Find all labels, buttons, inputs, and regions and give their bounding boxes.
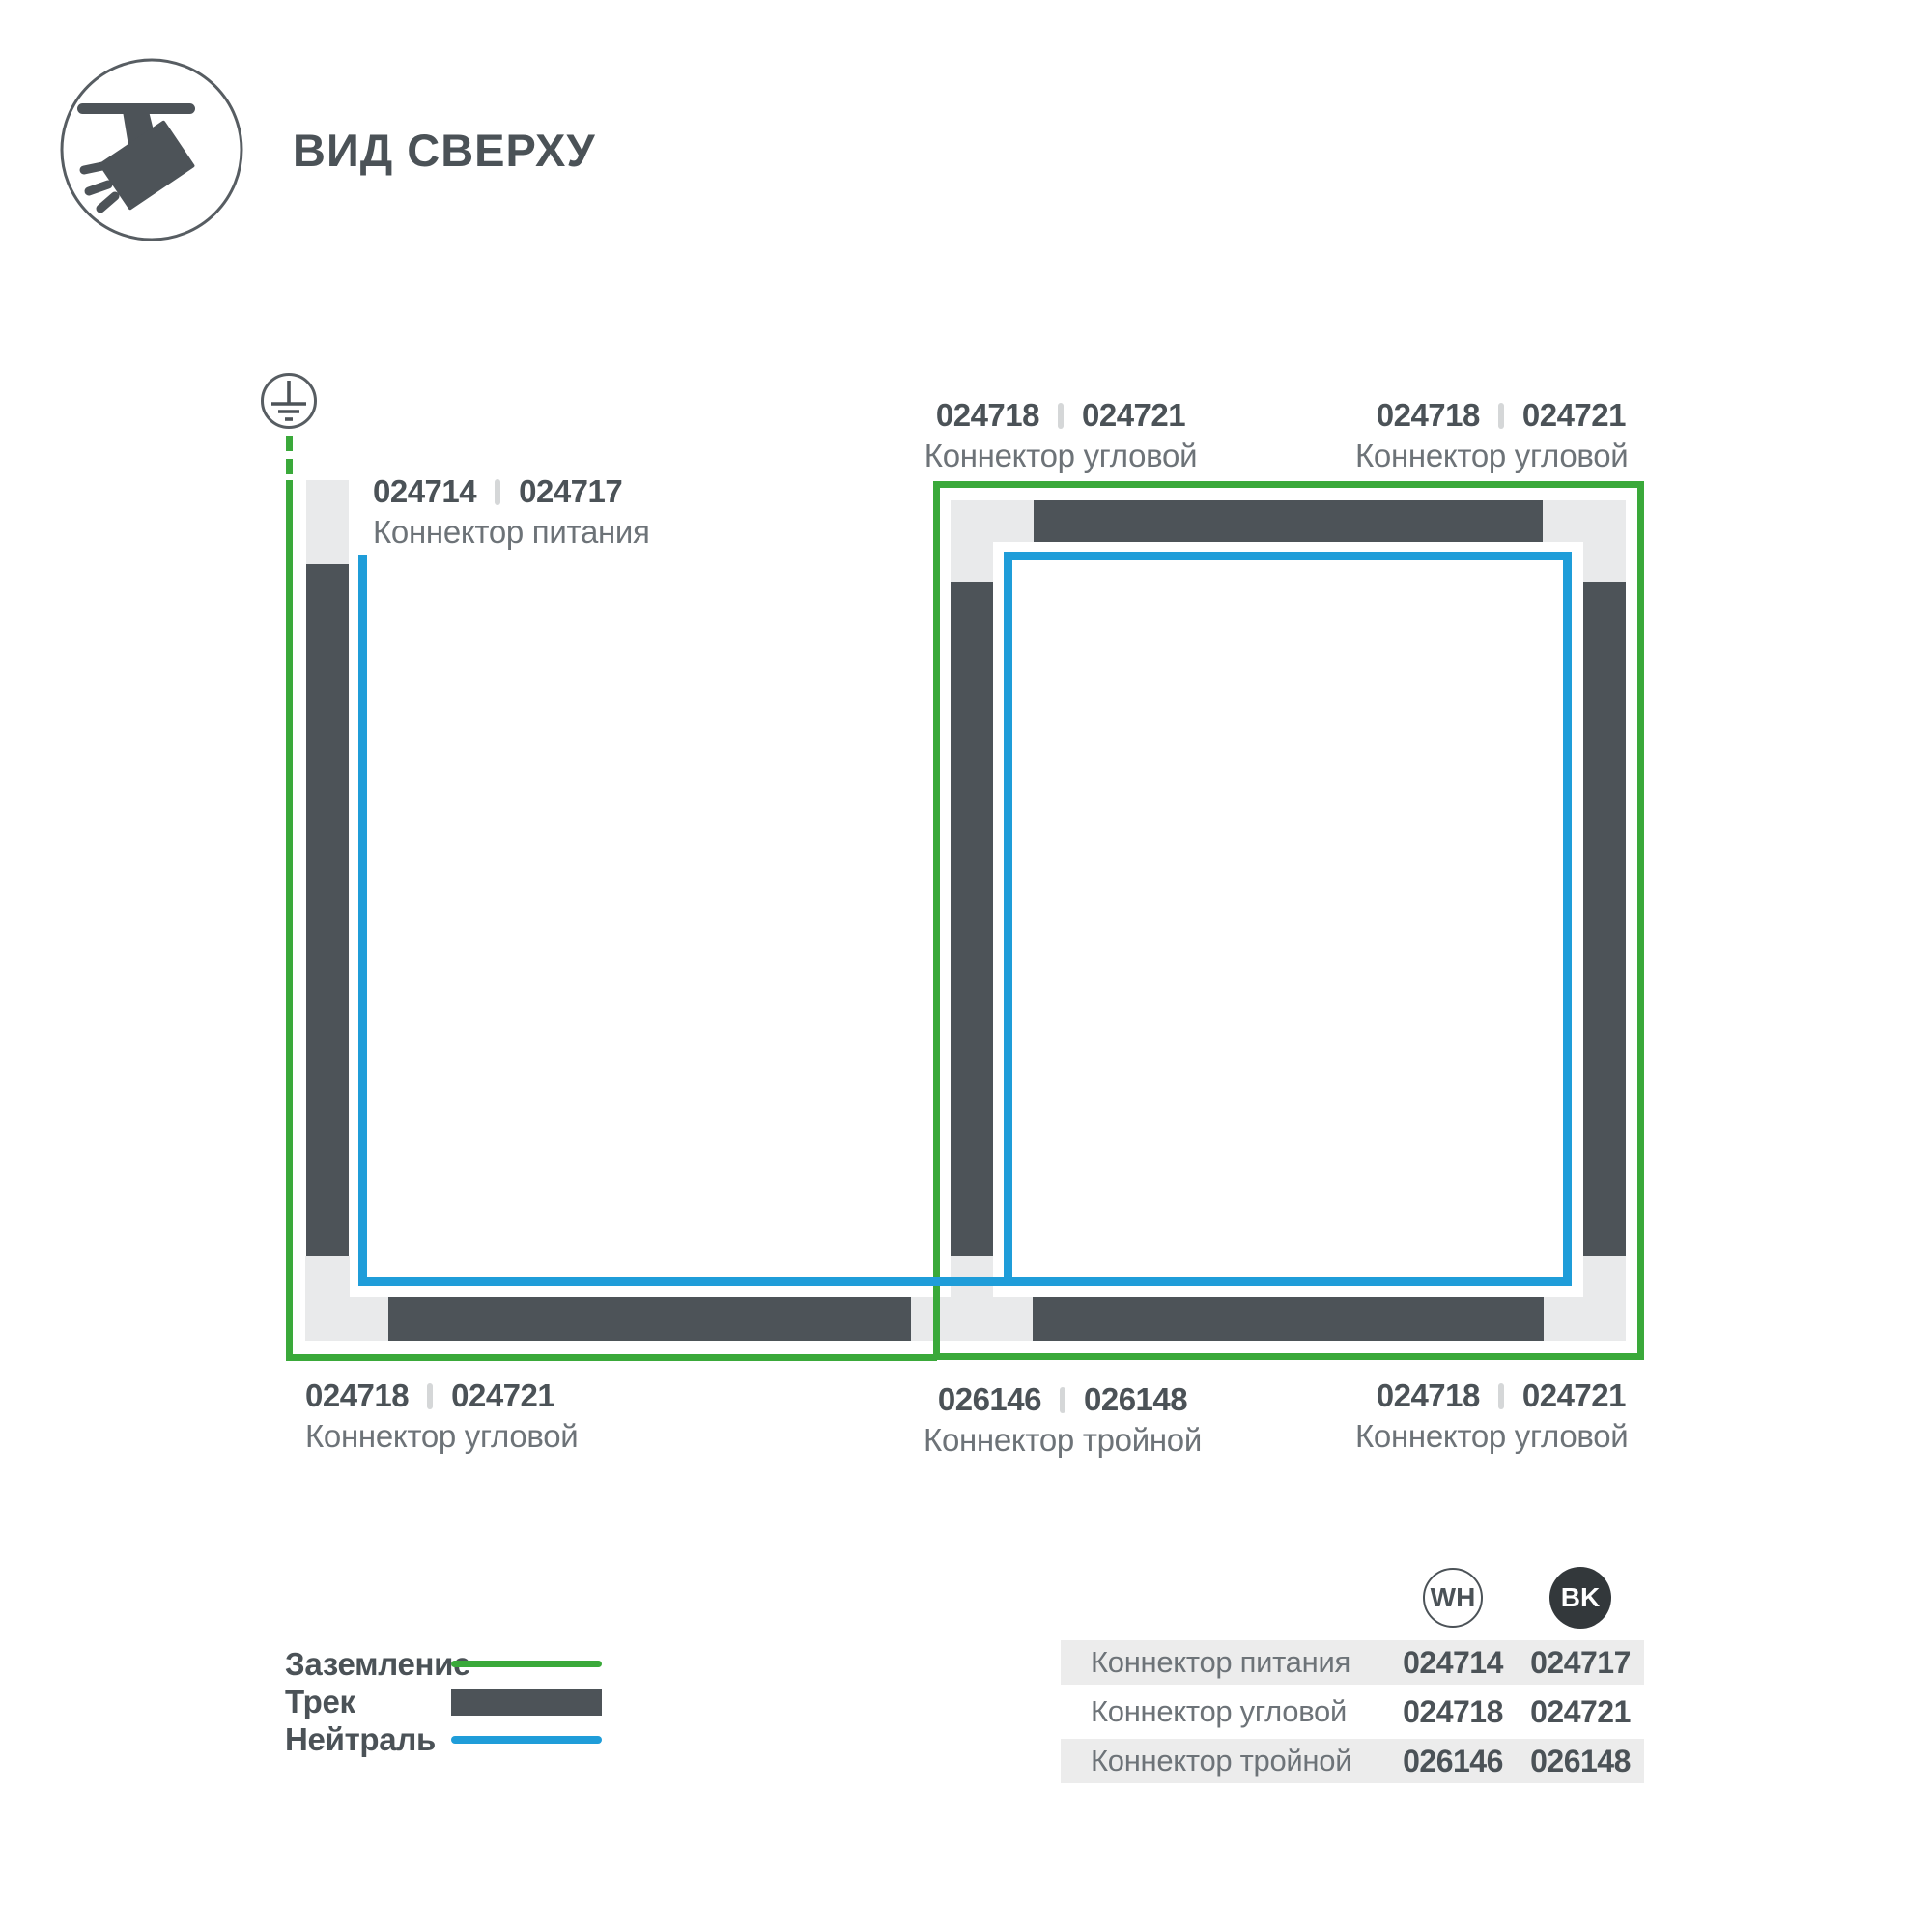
label-name: Коннектор угловой [1355,1420,1626,1452]
parts-table: WH BK Коннектор питания 024714 024717 Ко… [1061,1567,1644,1788]
row-name: Коннектор питания [1061,1645,1389,1680]
row-name: Коннектор тройной [1061,1744,1389,1778]
legend-label: Заземление [285,1646,451,1683]
row-code-bk: 024717 [1517,1645,1644,1681]
code-bk: 024721 [1522,1378,1626,1413]
code-bk: 024721 [451,1378,554,1413]
code-bk: 024721 [1082,397,1185,433]
legend-label: Трек [285,1684,451,1720]
track-left-loop-bottom [388,1297,911,1341]
legend-row-track: Трек [285,1683,604,1720]
code-bk: 024717 [519,473,622,509]
row-code-wh: 024718 [1389,1694,1517,1730]
label-name: Коннектор угловой [1355,440,1626,471]
code-separator [427,1383,433,1409]
code-wh: 024718 [936,397,1039,433]
label-codes: 026146026148 [918,1383,1207,1415]
legend-row-neutral: Нейтраль [285,1720,604,1758]
table-row: Коннектор тройной 026146 026148 [1061,1739,1644,1783]
page: ВИД СВЕРХУ 0247140247 [0,0,1932,1932]
label-codes: 024718024721 [305,1379,578,1411]
legend-label: Нейтраль [285,1721,451,1758]
code-wh: 024714 [373,473,476,509]
row-code-bk: 024721 [1517,1694,1644,1730]
corner-connector-bottom-left-arm [305,1297,388,1341]
label-name: Коннектор тройной [918,1424,1207,1456]
ground-symbol-icon [260,372,318,430]
parts-table-header: WH BK [1061,1567,1644,1640]
ground-dash [286,436,293,451]
neutral-loop-right-rect [1004,552,1572,1286]
track-left-loop-vertical [306,564,349,1256]
label-corner-top-right: 024718024721 Коннектор угловой [1355,399,1626,471]
code-separator [1058,403,1064,429]
color-badge-bk: BK [1549,1567,1611,1629]
label-codes: 024714024717 [373,475,650,507]
row-name: Коннектор угловой [1061,1694,1389,1729]
legend: Заземление Трек Нейтраль [285,1645,604,1758]
label-corner-top-mid: 024718024721 Коннектор угловой [916,399,1206,471]
label-codes: 024718024721 [916,399,1206,431]
table-row: Коннектор угловой 024718 024721 [1061,1690,1644,1734]
neutral-line-left-vertical [358,555,367,1286]
code-wh: 024718 [1377,397,1480,433]
label-name: Коннектор угловой [916,440,1206,471]
table-row: Коннектор питания 024714 024717 [1061,1640,1644,1685]
row-code-wh: 024714 [1389,1645,1517,1681]
label-codes: 024718024721 [1355,399,1626,431]
code-wh: 024718 [305,1378,409,1413]
code-separator [1498,403,1504,429]
label-power-connector: 024714024717 Коннектор питания [373,475,650,548]
label-name: Коннектор питания [373,516,650,548]
neutral-line-bottom-horizontal [358,1277,1009,1286]
row-code-wh: 026146 [1389,1744,1517,1779]
code-bk: 024721 [1522,397,1626,433]
label-corner-bottom-right: 024718024721 Коннектор угловой [1355,1379,1626,1452]
neutral-line-swatch [451,1736,602,1744]
track-bar-swatch [451,1689,602,1716]
label-name: Коннектор угловой [305,1420,578,1452]
page-title: ВИД СВЕРХУ [293,124,596,177]
ground-dash [286,459,293,474]
ground-line-left-vertical [286,480,293,1361]
code-separator [495,479,500,505]
ground-line-bottom-horizontal [286,1354,937,1361]
track-spotlight-icon [55,53,248,246]
row-code-bk: 026148 [1517,1744,1644,1779]
ground-line-swatch [451,1661,602,1667]
label-corner-bottom-left: 024718024721 Коннектор угловой [305,1379,578,1452]
code-separator [1498,1383,1504,1409]
code-bk: 026148 [1084,1381,1187,1417]
code-wh: 026146 [938,1381,1041,1417]
color-badge-wh: WH [1423,1568,1483,1628]
legend-row-ground: Заземление [285,1645,604,1683]
code-wh: 024718 [1377,1378,1480,1413]
power-connector [306,480,349,565]
code-separator [1060,1387,1065,1413]
label-triple-connector: 026146026148 Коннектор тройной [918,1383,1207,1456]
label-codes: 024718024721 [1355,1379,1626,1411]
